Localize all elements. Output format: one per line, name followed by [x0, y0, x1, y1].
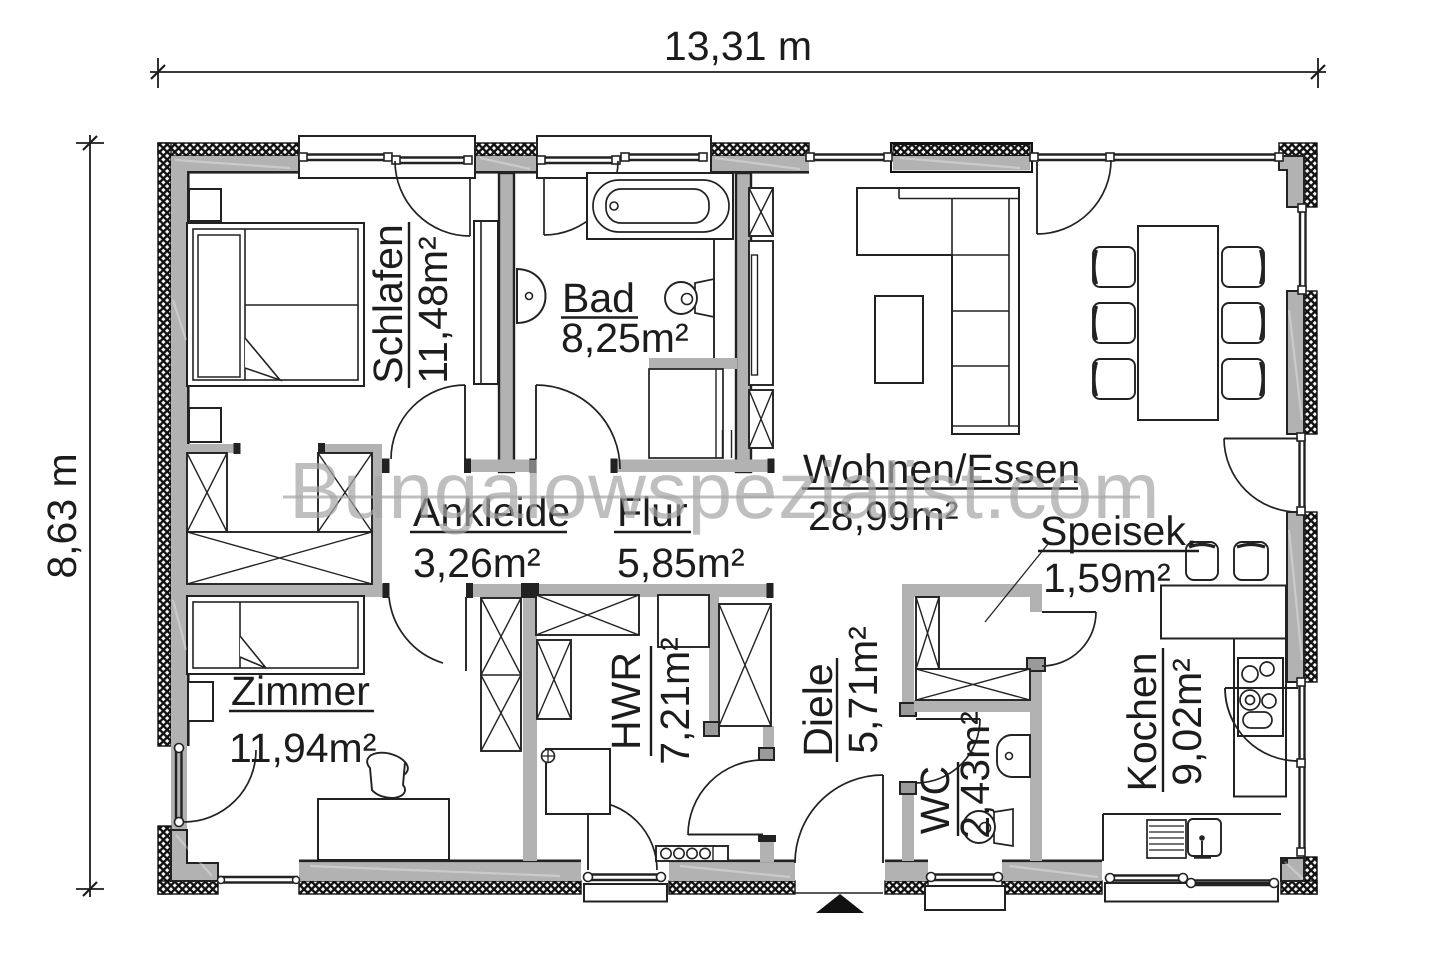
svg-text:Kochen: Kochen [1119, 652, 1165, 791]
svg-text:1,59m²: 1,59m² [1043, 555, 1171, 601]
svg-text:7,21m²: 7,21m² [652, 637, 698, 765]
svg-text:9,02m²: 9,02m² [1164, 658, 1210, 786]
svg-text:13,31 m: 13,31 m [664, 23, 812, 69]
svg-text:2,43m²: 2,43m² [952, 711, 998, 839]
svg-text:Schlafen: Schlafen [365, 224, 411, 384]
svg-text:Diele: Diele [795, 663, 841, 756]
svg-text:5,85m²: 5,85m² [617, 540, 745, 586]
svg-text:11,94m²: 11,94m² [229, 725, 376, 771]
svg-text:Zimmer: Zimmer [231, 668, 370, 714]
svg-text:5,71m²: 5,71m² [840, 626, 886, 754]
svg-text:3,26m²: 3,26m² [413, 540, 541, 586]
svg-text:8,25m²: 8,25m² [561, 315, 689, 361]
svg-text:Bungalowspezialist.com: Bungalowspezialist.com [289, 446, 1160, 535]
svg-text:HWR: HWR [603, 652, 649, 750]
svg-text:11,48m²: 11,48m² [410, 236, 456, 383]
svg-text:8,63 m: 8,63 m [39, 453, 85, 578]
